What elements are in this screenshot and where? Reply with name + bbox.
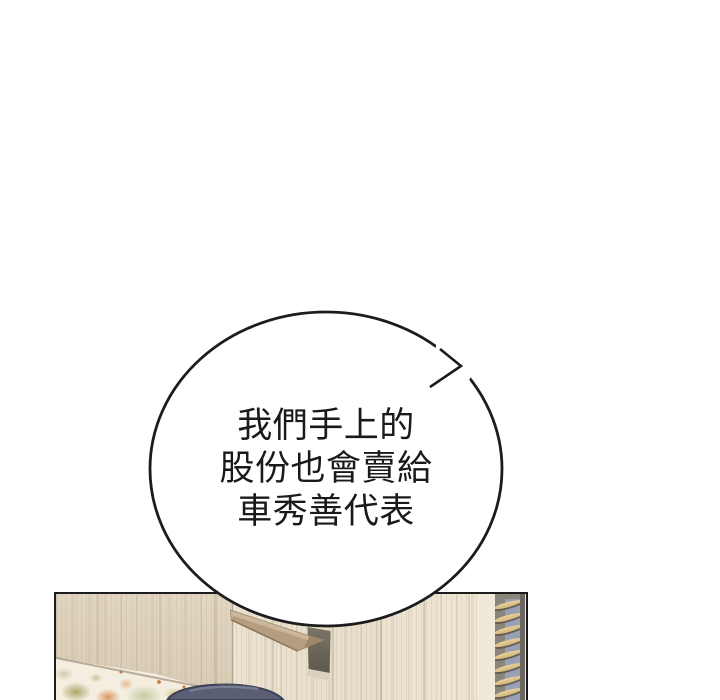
panel-artwork: [56, 594, 526, 700]
bubble-tail-eraser: [432, 346, 470, 388]
panel-inner: [56, 594, 526, 700]
bubble-line-1: 我們手上的: [126, 405, 526, 448]
comic-panel: [54, 592, 528, 700]
speech-bubble-text: 我們手上的 股份也會賣給 車秀善代表: [126, 405, 526, 534]
webtoon-page: 我們手上的 股份也會賣給 車秀善代表: [0, 0, 720, 700]
bubble-line-3: 車秀善代表: [126, 491, 526, 534]
wall-niche: [308, 627, 331, 673]
bubble-tail: [430, 349, 461, 387]
bubble-line-2: 股份也會賣給: [126, 448, 526, 491]
